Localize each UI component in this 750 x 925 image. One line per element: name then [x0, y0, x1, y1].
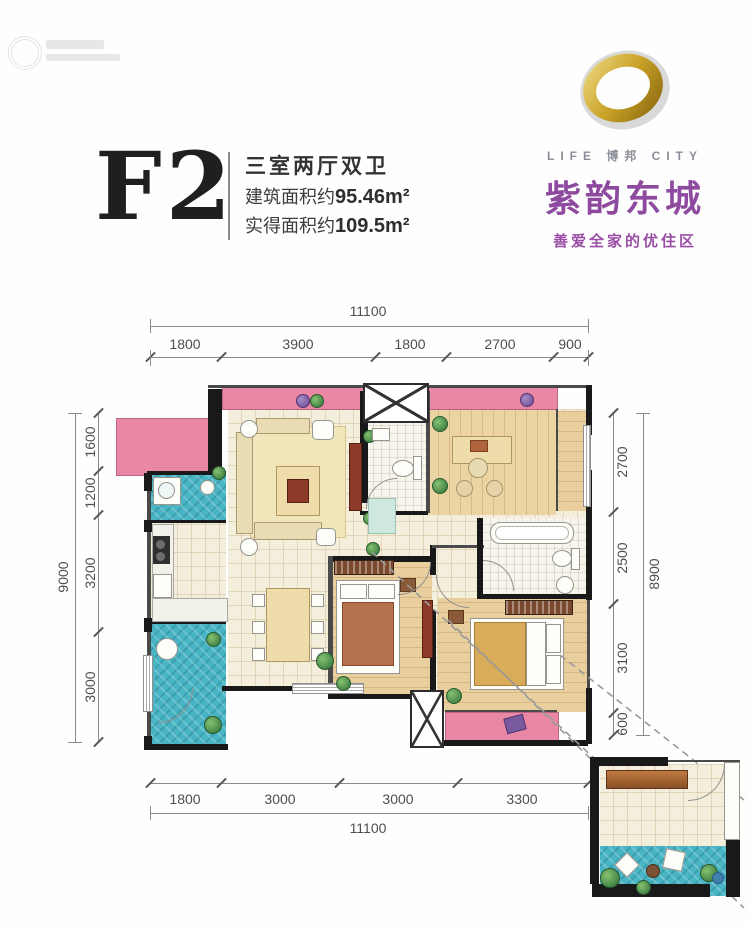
detail-stool: [662, 848, 686, 872]
wall: [592, 757, 668, 766]
detail-decor: [712, 872, 724, 884]
plant: [636, 880, 651, 895]
wall: [726, 836, 740, 897]
floorplan-page: F2 三室两厅双卫 建筑面积约95.46m² 实得面积约109.5m² LIFE…: [0, 0, 750, 925]
detail-table: [646, 864, 660, 878]
detail-door-panel: [724, 762, 740, 840]
wall: [590, 757, 599, 884]
detail-bench: [606, 770, 688, 789]
plant: [600, 868, 620, 888]
